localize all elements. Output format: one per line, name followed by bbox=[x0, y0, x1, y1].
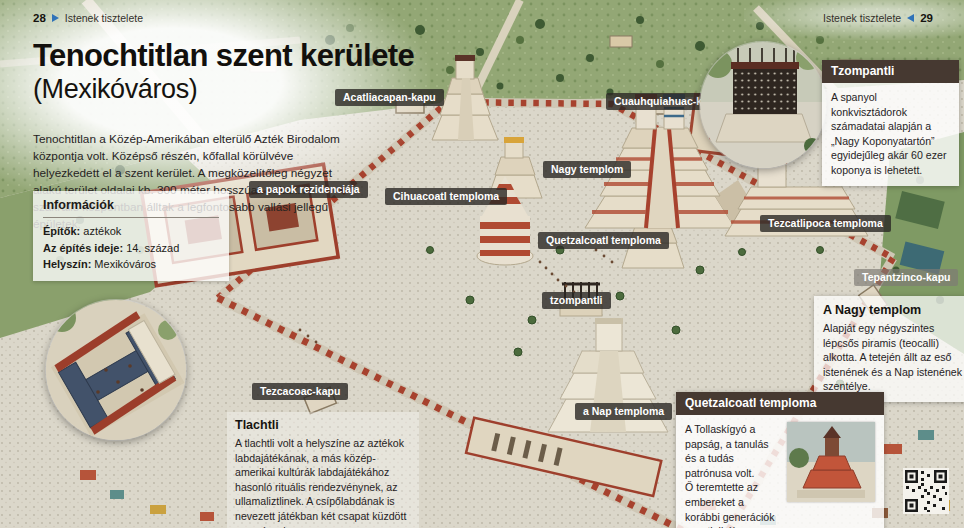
quetzalcoatl-temple-photo bbox=[787, 422, 875, 502]
callout-nagy-templom: A Nagy templom Alapját egy négyszintes l… bbox=[814, 296, 964, 402]
ball-court-inset-image bbox=[46, 300, 186, 440]
map-label-tepantzinco-kapu: Tepantzinco-kapu bbox=[854, 269, 958, 286]
info-box: Információk Építők: aztékok Az építés id… bbox=[33, 191, 229, 281]
tzompantli-inset-image bbox=[700, 42, 826, 168]
map-label-quetzalcoatl-temploma: Quetzalcoatl temploma bbox=[538, 232, 669, 249]
info-value-date: 14. század bbox=[123, 242, 179, 254]
info-row-builders: Építők: aztékok bbox=[43, 223, 219, 240]
map-label-tezcacoac-kapu: Tezcacoac-kapu bbox=[252, 383, 348, 400]
map-label-tzompantli: tzompantli bbox=[542, 292, 611, 309]
callout-tlachtli-title: Tlachtli bbox=[235, 418, 411, 432]
book-spread: 28 Istenek tisztelete Istenek tisztelete… bbox=[0, 0, 964, 528]
map-label-acatliacapan-kapu: Acatliacapan-kapu bbox=[335, 89, 444, 106]
callout-quetzalcoatl: Quetzalcoatl temploma A Tollaskígyó a pa… bbox=[676, 392, 884, 528]
callout-tzompantli: Tzompantli A spanyol konkvisztádorok szá… bbox=[822, 60, 959, 186]
prev-page-arrow-icon bbox=[907, 14, 914, 22]
map-label-cihuacoatl-temploma: Cihuacoatl temploma bbox=[385, 188, 507, 205]
info-row-date: Az építés ideje: 14. század bbox=[43, 240, 219, 257]
callout-tlachtli: Tlachtli A tlachtli volt a helyszíne az … bbox=[227, 412, 419, 528]
callout-quetzalcoatl-title: Quetzalcoatl temploma bbox=[676, 392, 884, 415]
callout-tlachtli-body: A tlachtli volt a helyszíne az aztékok l… bbox=[235, 436, 411, 528]
callout-tzompantli-title: Tzompantli bbox=[822, 60, 959, 83]
info-box-title: Információk bbox=[43, 198, 219, 218]
page-title: Tenochtitlan szent kerülete bbox=[33, 40, 414, 72]
page-header-left: 28 Istenek tisztelete bbox=[33, 12, 143, 24]
page-header-right: Istenek tisztelete 29 bbox=[823, 12, 933, 24]
callout-quetzalcoatl-body: A Tollaskígyó a papság, a tanulás és a t… bbox=[685, 422, 780, 528]
next-page-arrow-icon bbox=[52, 14, 59, 22]
callout-nagy-templom-title: A Nagy templom bbox=[823, 303, 964, 317]
info-label-date: Az építés ideje: bbox=[43, 242, 123, 254]
qr-code bbox=[903, 468, 949, 514]
info-value-builders: aztékok bbox=[80, 225, 121, 237]
map-label-tezcatlipoca-temploma: Tezcatlipoca temploma bbox=[760, 215, 891, 232]
page-number-right: 29 bbox=[920, 12, 933, 24]
section-title-right: Istenek tisztelete bbox=[823, 12, 901, 24]
map-label-nagy-templom: Nagy templom bbox=[543, 161, 631, 178]
callout-tzompantli-body: A spanyol konkvisztádorok számadatai ala… bbox=[822, 83, 959, 186]
info-label-location: Helyszín: bbox=[43, 258, 91, 270]
info-label-builders: Építők: bbox=[43, 225, 80, 237]
info-value-location: Mexikóváros bbox=[91, 258, 156, 270]
callout-nagy-templom-body: Alapját egy négyszintes lépcsős piramis … bbox=[823, 321, 964, 394]
map-label-nap-temploma: a Nap temploma bbox=[575, 403, 672, 420]
page-number-left: 28 bbox=[33, 12, 46, 24]
info-row-location: Helyszín: Mexikóváros bbox=[43, 256, 219, 273]
map-label-papok-rezidenciaja: a papok rezidenciája bbox=[249, 181, 368, 198]
section-title-left: Istenek tisztelete bbox=[65, 12, 143, 24]
